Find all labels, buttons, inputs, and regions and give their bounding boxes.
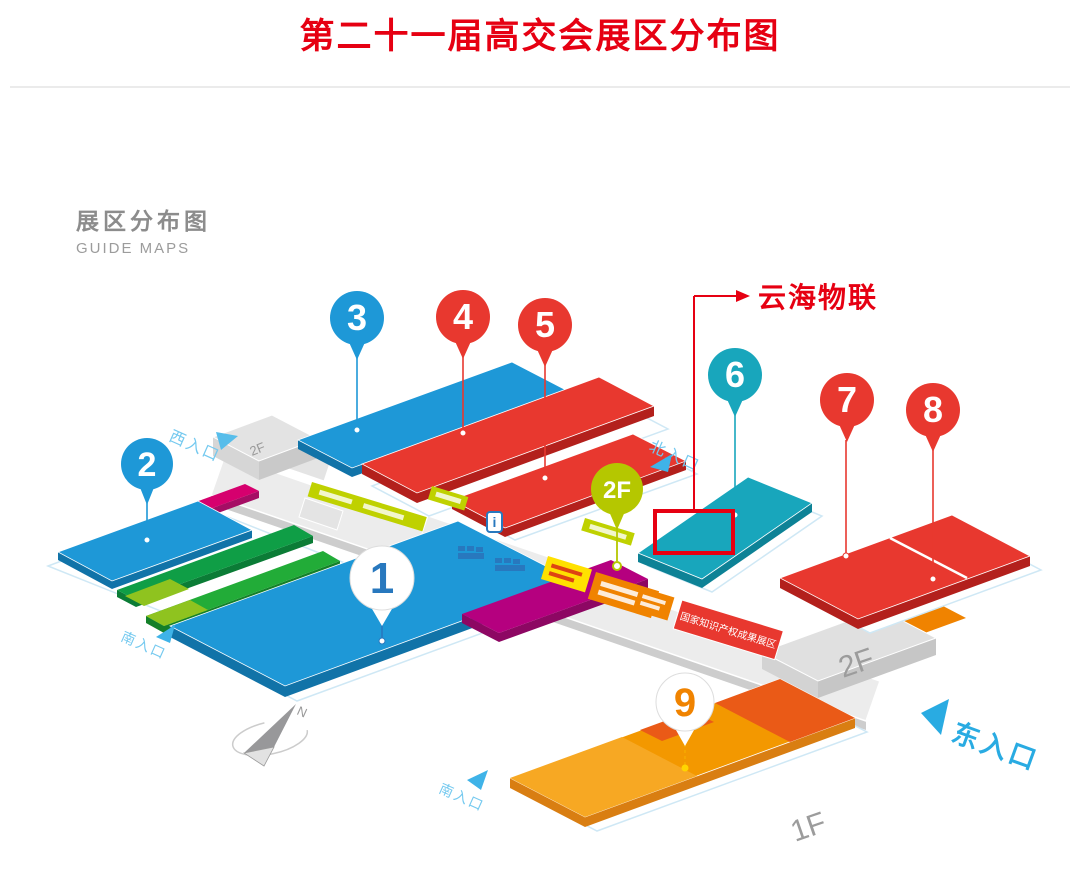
compass-n-label: N	[295, 703, 310, 721]
pin-2f-label: 2F	[603, 477, 631, 504]
corridor-label-strip	[581, 518, 635, 546]
pin-5: 5	[518, 298, 572, 367]
floor-label-1f: 1F	[787, 806, 831, 849]
booth-annotation-label: 云海物联	[758, 281, 878, 314]
pin-9-number: 9	[674, 681, 696, 725]
pin-4: 4	[436, 290, 490, 359]
entrance-south-left: 南入口	[119, 625, 175, 662]
entrance-west-label: 西入口	[166, 428, 222, 466]
pin-2-number: 2	[138, 446, 157, 484]
exhibition-map: 2F 2F	[0, 0, 1080, 894]
pin-7-number: 7	[837, 379, 857, 420]
pin-5-number: 5	[535, 304, 555, 345]
entrance-east: 东入口	[921, 699, 1043, 776]
south-bottom-entrance-arrow-icon	[467, 770, 488, 790]
pin-3-number: 3	[347, 297, 367, 338]
pin-6-number: 6	[725, 354, 745, 395]
pin-7: 7	[820, 373, 874, 442]
entrance-east-label: 东入口	[948, 717, 1043, 777]
compass-arrow-dark	[244, 704, 296, 753]
pin-8: 8	[906, 383, 960, 452]
pin-2: 2	[121, 438, 173, 505]
entrance-south-bottom: 南入口	[437, 770, 488, 814]
info-icon-letter: i	[493, 514, 497, 530]
pin-1-number: 1	[370, 554, 394, 603]
pin-4-number: 4	[453, 296, 473, 337]
pin-6: 6	[708, 348, 762, 417]
entrance-south-left-label: 南入口	[119, 628, 169, 662]
east-entrance-arrow-icon	[921, 699, 949, 735]
pin-2f: 2F	[591, 463, 643, 530]
pin-3: 3	[330, 291, 384, 360]
screenshot-canvas: 第二十一届高交会展区分布图 展区分布图 GUIDE MAPS 2F	[0, 0, 1080, 894]
compass-icon: N	[230, 703, 311, 766]
pin-8-number: 8	[923, 389, 943, 430]
annotation-arrow-icon	[736, 290, 750, 302]
